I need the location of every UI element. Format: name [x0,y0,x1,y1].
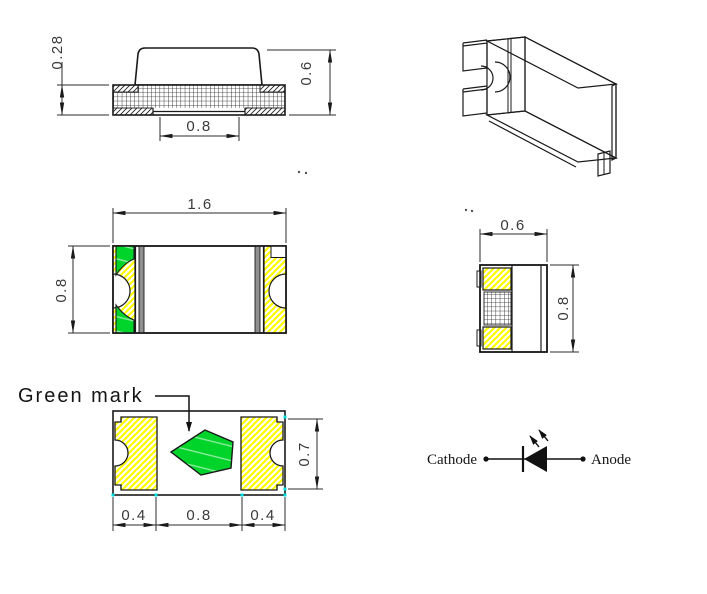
led-polarity-symbol: Cathode Anode [427,430,631,472]
dim-width: 0.8 [53,246,110,333]
dim-label-end-height: 0.8 [555,295,572,320]
side-view-plating-top-right [260,85,285,92]
side-view-epoxy-body [135,48,262,85]
green-mark-label: Green mark [18,385,144,407]
diode-triangle [524,446,547,472]
drawing-canvas: 0.28 0.6 0.8 [0,0,707,594]
dim-label-right-pad: 0.4 [250,507,275,524]
dim-label-length: 1.6 [187,196,212,213]
green-mark-leader [155,396,189,431]
iso-top-face [487,37,616,88]
side-view-plating-bottom-left [113,108,153,115]
iso-right-edge [612,84,616,160]
top-view: 1.6 0.8 [53,196,286,333]
dim-label-center-gap: 0.8 [186,507,211,524]
artifact-dots [298,171,473,212]
led-package-drawing: 0.28 0.6 0.8 [0,0,707,594]
end-view-top-pad [483,268,511,290]
iso-view [463,37,616,176]
iso-side-face [525,37,616,158]
dim-label-width: 0.8 [53,277,70,302]
iso-bottom-edge-line [489,121,576,167]
dim-length: 1.6 [113,196,286,243]
end-view-bottom-pad [483,327,511,349]
light-emission-arrows [530,430,548,447]
top-view-left-separator [139,246,144,333]
dim-label-end-width: 0.6 [500,217,525,234]
cathode-label: Cathode [427,452,477,468]
dim-pad-height: 0.7 [288,419,323,489]
end-view-substrate-crosshatch [484,292,511,325]
top-view-right-terminal [264,246,286,333]
bottom-view-right-pad [241,417,283,490]
dim-base-height: 0.28 [49,34,109,115]
top-view-right-notch [271,246,286,258]
side-view-plating-bottom-right [245,108,285,115]
side-view-plating-top-left [113,85,138,92]
dim-bottom-pads-gap: 0.8 [160,117,239,141]
dim-bottom-row: 0.4 0.8 0.4 [113,497,285,531]
dim-label-left-pad: 0.4 [121,507,146,524]
bottom-view: Green mark 0.4 0.8 0.4 0.7 [18,385,323,531]
dim-end-width: 0.6 [480,217,547,262]
bottom-view-left-pad [115,417,157,490]
dim-label-base-height: 0.28 [49,34,66,69]
green-mark-pentagon [171,430,233,475]
iso-lower-tab [463,89,487,116]
dim-label-bottom-pads-gap: 0.8 [186,118,211,135]
dim-label-pad-height: 0.7 [296,441,313,466]
dim-end-height: 0.8 [550,265,579,352]
anode-terminal-dot [580,456,585,461]
dim-label-total-height: 0.6 [298,60,315,85]
end-view: 0.6 0.8 [477,217,579,352]
side-view-substrate-crosshatch [113,85,285,111]
side-view: 0.28 0.6 0.8 [49,34,336,141]
top-view-right-separator [255,246,260,333]
anode-label: Anode [591,452,631,468]
